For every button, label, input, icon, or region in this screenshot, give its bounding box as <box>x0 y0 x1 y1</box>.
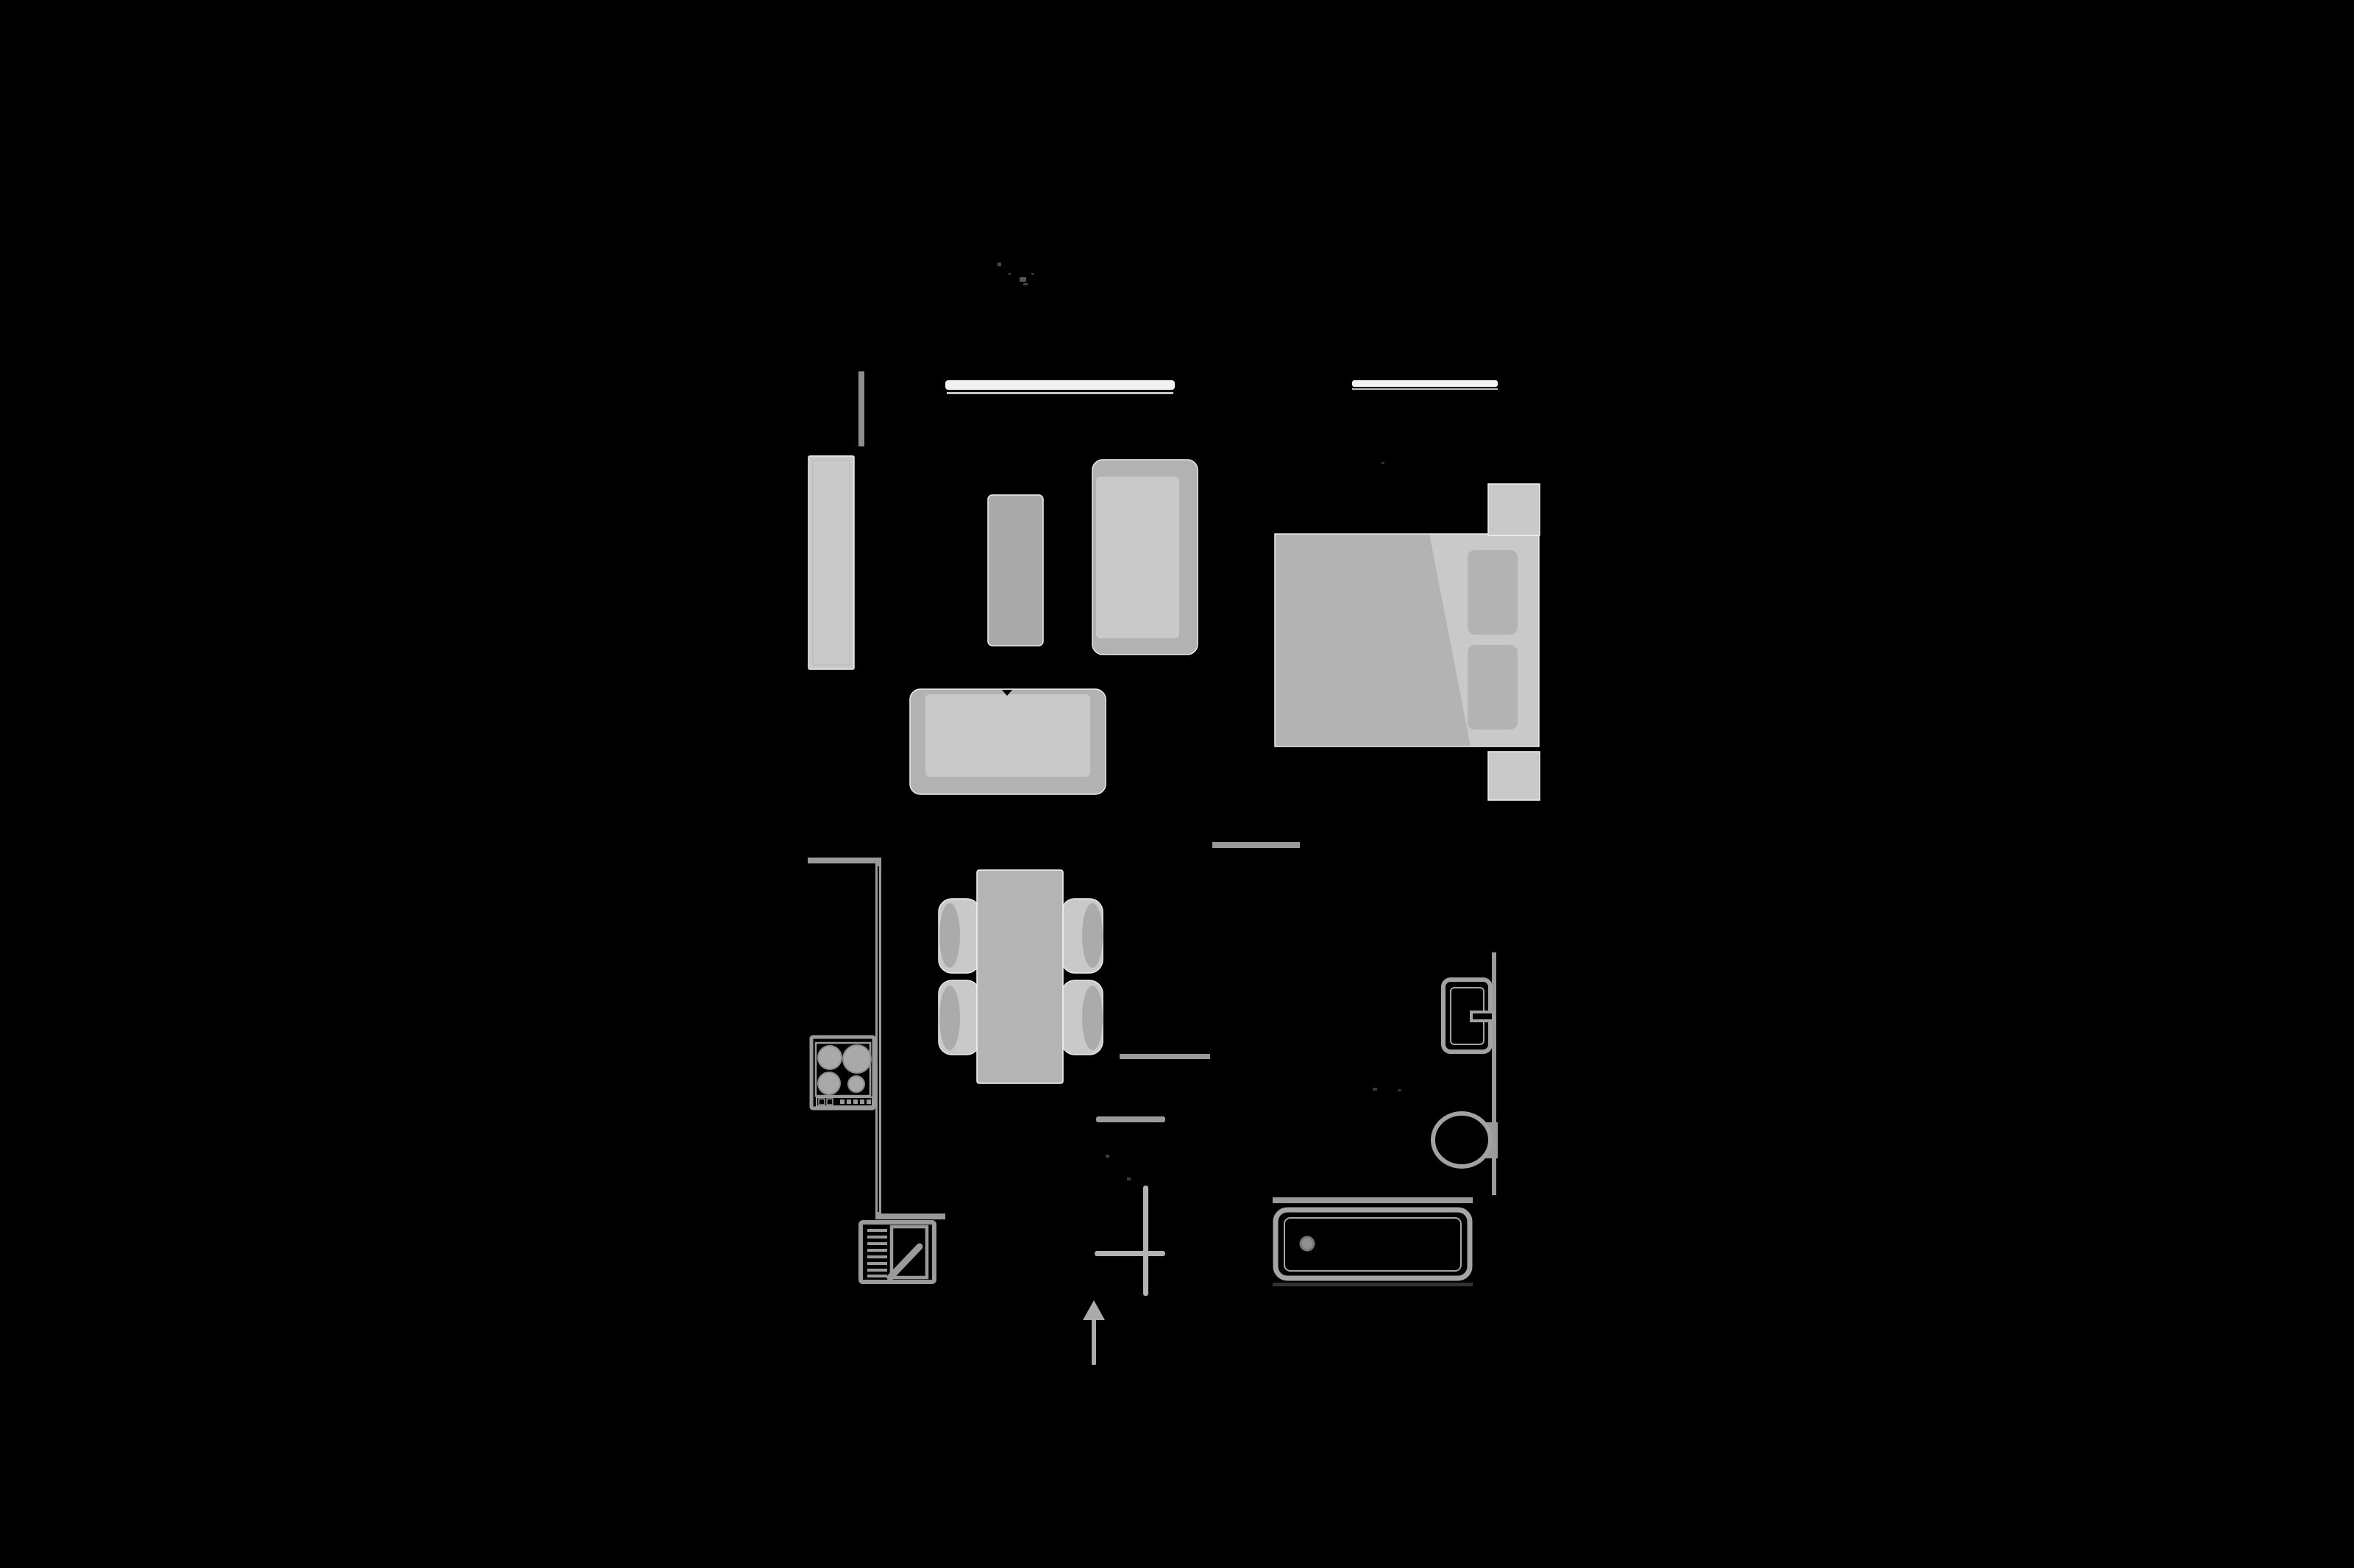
sink-tap <box>1471 1012 1493 1021</box>
dining-chair-back-top-left <box>939 903 960 968</box>
wall-tub-top <box>1273 1197 1473 1203</box>
appliance-vent-8 <box>867 1275 887 1277</box>
entry-door-swing <box>1095 1251 1165 1256</box>
speck-5 <box>1023 283 1028 285</box>
bed-pillow-bottom <box>1468 645 1518 730</box>
nightstand-top <box>1488 484 1540 535</box>
appliance-vent-4 <box>867 1249 887 1252</box>
wall-kitchen-bottom <box>878 1214 945 1219</box>
appliance-vent-3 <box>867 1242 887 1245</box>
stove-burner-bottom-left <box>818 1072 840 1094</box>
wall-dining-door <box>1120 1054 1210 1059</box>
floor-plan-svg <box>0 0 2354 1568</box>
speck-1 <box>998 263 1001 266</box>
speck-8 <box>1127 1177 1131 1180</box>
wall-left-door-jamb <box>858 371 864 446</box>
appliance-vent-7 <box>867 1269 887 1272</box>
bookshelf <box>808 456 854 669</box>
nightstand-bottom <box>1488 752 1540 800</box>
speck-3 <box>1020 277 1026 282</box>
appliance-vent-5 <box>867 1255 887 1258</box>
tv-bench <box>988 495 1043 646</box>
stove-burner-top-right <box>843 1045 871 1073</box>
speck-9 <box>1373 1088 1377 1091</box>
sofa-seat <box>1096 477 1179 638</box>
bed-pillow-top <box>1468 550 1518 635</box>
entry-arrow-shaft <box>1092 1316 1096 1365</box>
appliance-vent-1 <box>867 1229 887 1232</box>
speck-2 <box>1009 273 1011 275</box>
window-living <box>945 380 1175 390</box>
bathtub-drain <box>1301 1237 1314 1250</box>
floor-plan-image <box>0 0 2354 1568</box>
stove-knob-5 <box>867 1100 871 1104</box>
stove-knob-4 <box>860 1100 864 1104</box>
speck-4 <box>1031 273 1034 275</box>
stove-switch-right <box>827 1099 833 1105</box>
stove-switch-left <box>819 1099 825 1105</box>
loveseat-seat <box>925 694 1090 777</box>
window-bedroom <box>1352 380 1498 387</box>
wall-kitchen-top <box>808 858 881 863</box>
dining-chair-back-bottom-right <box>1082 986 1103 1050</box>
dining-table <box>977 870 1063 1083</box>
stove-burner-top-left <box>818 1046 842 1069</box>
window-bedroom-sill <box>1352 388 1498 390</box>
wall-hall-stub <box>1212 842 1300 848</box>
speck-6 <box>1382 462 1384 464</box>
speck-7 <box>1106 1155 1109 1158</box>
stove-burner-bottom-right <box>848 1076 864 1092</box>
appliance-vent-6 <box>867 1262 887 1265</box>
stove-knob-3 <box>853 1100 858 1104</box>
dining-chair-back-bottom-left <box>939 986 960 1050</box>
speck-10 <box>1398 1089 1401 1091</box>
stove-knob-1 <box>840 1100 844 1104</box>
dining-chair-back-top-right <box>1082 903 1103 968</box>
wall-entry-top <box>1096 1116 1165 1122</box>
entry-arrow-head <box>1083 1300 1105 1320</box>
appliance-vent-2 <box>867 1236 887 1239</box>
appliance-handle <box>890 1247 920 1277</box>
wall-kitchen-vertical-gap <box>878 866 879 1212</box>
window-living-sill <box>947 392 1173 394</box>
entry-door-post <box>1143 1186 1148 1296</box>
toilet-bowl <box>1433 1113 1490 1166</box>
wall-tub-bottom-shadow <box>1273 1283 1473 1286</box>
stove-knob-2 <box>847 1100 851 1104</box>
